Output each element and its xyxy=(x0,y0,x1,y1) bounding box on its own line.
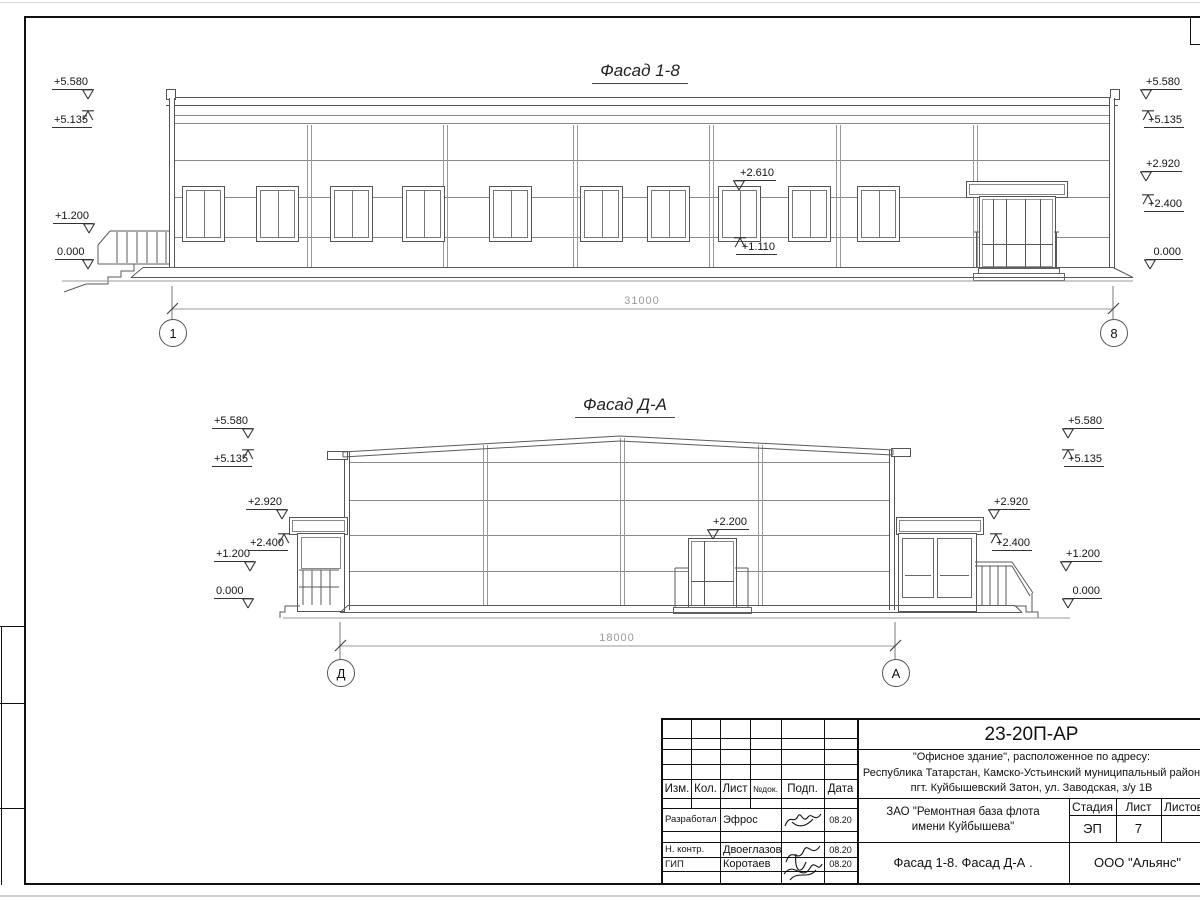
tb-line xyxy=(720,720,721,883)
row-role: Н. контр. xyxy=(665,842,720,857)
tb-line xyxy=(663,798,857,799)
client-line: имени Куйбышева" xyxy=(912,820,1015,835)
stage-label: Стадия xyxy=(1069,798,1116,815)
col-ndok: №док. xyxy=(750,779,781,798)
row-date: 08.20 xyxy=(824,857,857,871)
row-name: Двоеглазов xyxy=(723,842,780,857)
sheet-label: Лист xyxy=(1116,798,1161,815)
tb-line xyxy=(663,749,857,750)
client-name: ЗАО "Ремонтная база флота имени Куйбышев… xyxy=(857,798,1069,842)
col-podp: Подп. xyxy=(781,779,824,798)
tb-line xyxy=(663,831,857,832)
row-name: Коротаев xyxy=(723,857,780,871)
row-date: 08.20 xyxy=(824,808,857,831)
col-data: Дата xyxy=(824,779,857,798)
tb-line xyxy=(663,738,857,739)
signature xyxy=(782,840,824,885)
drawing-sheet: Фасад 1-8 +5.580 +5.135 +1.200 0.000 +5.… xyxy=(0,0,1200,900)
organization: ООО "Альянс" xyxy=(1069,842,1200,883)
doc-title: Фасад 1-8. Фасад Д-А . xyxy=(857,842,1069,883)
col-izm: Изм. xyxy=(663,779,691,798)
row-name: Эфрос xyxy=(723,808,780,831)
address-line: пгт. Куйбышевский Затон, ул. Заводская, … xyxy=(911,781,1153,797)
tb-line xyxy=(663,764,857,765)
stage-value: ЭП xyxy=(1069,815,1116,842)
col-kol: Кол. xyxy=(691,779,720,798)
signature xyxy=(782,809,824,830)
client-line: ЗАО "Ремонтная база флота xyxy=(886,805,1039,820)
sheets-value xyxy=(1161,815,1200,842)
row-role: Разработал xyxy=(665,808,720,831)
row-date: 08.20 xyxy=(824,842,857,857)
sheets-label: Листов xyxy=(1161,798,1200,815)
row-role: ГИП xyxy=(665,857,720,871)
address-line: "Офисное здание", расположенное по адрес… xyxy=(913,750,1150,766)
col-list: Лист xyxy=(720,779,750,798)
title-block: 23-20П-АР "Офисное здание", расположенно… xyxy=(661,718,1200,885)
document-code: 23-20П-АР xyxy=(857,720,1200,749)
address-line: Республика Татарстан, Камско-Устьинский … xyxy=(863,766,1200,782)
tb-line xyxy=(663,871,857,872)
project-address: "Офисное здание", расположенное по адрес… xyxy=(857,749,1200,798)
sheet-value: 7 xyxy=(1116,815,1161,842)
